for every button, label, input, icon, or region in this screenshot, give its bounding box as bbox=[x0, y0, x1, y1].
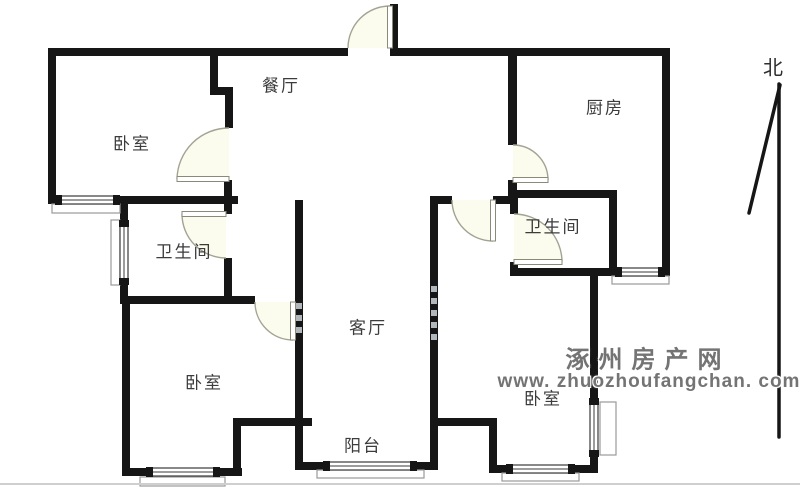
wall-segment bbox=[609, 190, 617, 276]
wall-segment bbox=[210, 87, 233, 95]
window-sill bbox=[111, 220, 120, 285]
bedroom-sw-door-leaf bbox=[291, 302, 296, 340]
kitchen-door-leaf bbox=[513, 178, 548, 183]
photo-edge-line bbox=[0, 483, 800, 485]
wall-segment bbox=[233, 418, 312, 426]
bedroom-se-door-leaf bbox=[491, 200, 496, 241]
wall-segment bbox=[508, 48, 517, 145]
wall-segment bbox=[48, 48, 56, 204]
wall-hatch bbox=[296, 303, 302, 309]
wall-segment bbox=[120, 204, 128, 222]
bathroom-e-door-leaf bbox=[514, 260, 562, 265]
window-end-block bbox=[615, 267, 622, 277]
watermark-site-url: www. zhuozhoufangchan. com bbox=[498, 371, 800, 393]
room-label-bathroom-w: 卫生间 bbox=[156, 238, 213, 263]
compass-north-label: 北 bbox=[763, 52, 783, 81]
floorplan-drawing bbox=[0, 0, 800, 487]
wall-hatch bbox=[296, 327, 302, 333]
window-sill bbox=[52, 204, 120, 213]
wall-segment bbox=[430, 418, 497, 426]
entrance-door-leaf bbox=[388, 6, 393, 48]
wall-hatch bbox=[431, 286, 437, 292]
window-end-block bbox=[589, 398, 599, 405]
wall-segment bbox=[233, 418, 241, 476]
bathroom-w-door-leaf bbox=[182, 212, 226, 217]
window-end-block bbox=[568, 464, 575, 474]
window-end-block bbox=[119, 278, 129, 285]
wall-segment bbox=[295, 200, 303, 470]
room-label-bathroom-e: 卫生间 bbox=[525, 213, 582, 238]
window-sill bbox=[612, 276, 669, 284]
window-end-block bbox=[323, 461, 330, 471]
watermark-site-name: 涿州房产网 bbox=[566, 340, 731, 375]
wall-segment bbox=[590, 455, 598, 473]
room-label-bedroom-nw: 卧室 bbox=[113, 130, 151, 155]
window-end-block bbox=[589, 450, 599, 457]
floorplan-image: 卧室 餐厅 厨房 卫生间 卫生间 客厅 卧室 卧室 阳台 北 涿州房产网 www… bbox=[0, 0, 800, 487]
wall-segment bbox=[120, 296, 255, 304]
wall-segment bbox=[122, 296, 130, 476]
wall-segment bbox=[48, 48, 348, 56]
wall-hatch bbox=[431, 310, 437, 316]
wall-segment bbox=[510, 190, 617, 198]
window-end-block bbox=[119, 220, 129, 227]
room-label-balcony: 阳台 bbox=[344, 432, 382, 457]
wall-hatch bbox=[296, 315, 302, 321]
wall-segment bbox=[390, 48, 670, 56]
wall-segment bbox=[510, 190, 518, 214]
wall-segment bbox=[430, 196, 452, 204]
room-label-bedroom-sw: 卧室 bbox=[185, 369, 223, 394]
wall-segment bbox=[225, 95, 233, 128]
wall-segment bbox=[662, 48, 670, 276]
wall-hatch bbox=[431, 322, 437, 328]
bedroom-nw-door-leaf bbox=[177, 177, 229, 182]
room-label-dining: 餐厅 bbox=[262, 72, 300, 97]
window-end-block bbox=[146, 467, 153, 477]
window-end-block bbox=[55, 195, 62, 205]
room-label-kitchen: 厨房 bbox=[586, 94, 624, 119]
window-sill bbox=[502, 473, 579, 481]
window-sill bbox=[600, 402, 616, 455]
window-end-block bbox=[410, 461, 417, 471]
wall-hatch bbox=[431, 298, 437, 304]
wall-hatch bbox=[431, 334, 437, 340]
window-end-block bbox=[213, 467, 220, 477]
window-end-block bbox=[506, 464, 513, 474]
window-sill bbox=[317, 470, 424, 478]
north-arrow-line bbox=[749, 85, 780, 213]
wall-segment bbox=[489, 418, 497, 473]
room-label-living: 客厅 bbox=[349, 314, 387, 339]
window-end-block bbox=[658, 267, 665, 277]
wall-segment bbox=[430, 196, 438, 470]
window-end-block bbox=[113, 195, 120, 205]
